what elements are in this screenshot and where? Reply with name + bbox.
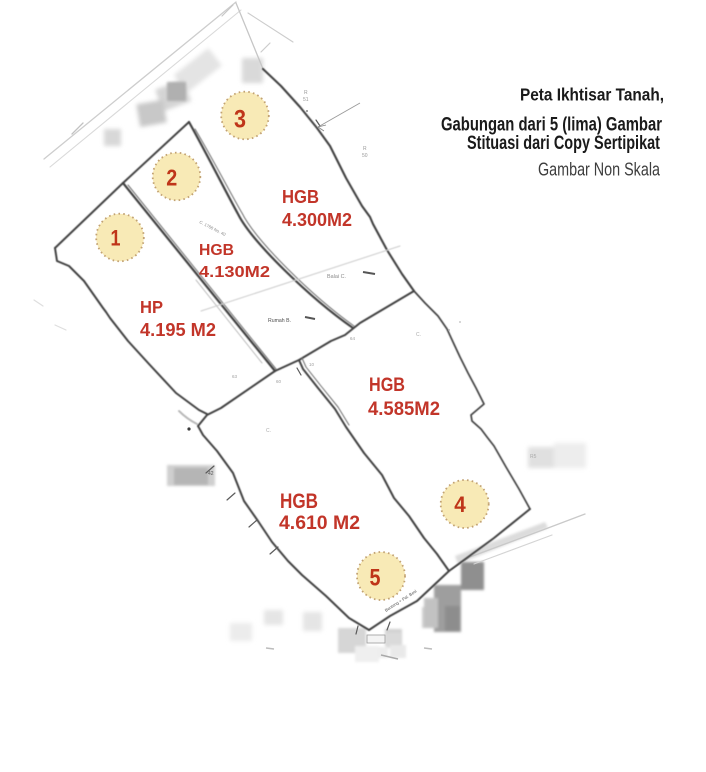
svg-text:51: 51	[303, 97, 309, 103]
svg-text:R: R	[304, 90, 308, 96]
svg-text:C.: C.	[266, 428, 271, 434]
svg-text:4.130M2: 4.130M2	[199, 264, 270, 281]
svg-text:1: 1	[111, 225, 121, 250]
svg-text:4.610 M2: 4.610 M2	[279, 512, 360, 534]
svg-text:64: 64	[350, 336, 356, 341]
svg-text:4.300M2: 4.300M2	[282, 209, 352, 230]
svg-text:HGB: HGB	[369, 374, 405, 396]
svg-text:R5: R5	[530, 454, 537, 460]
svg-text:63: 63	[232, 374, 238, 379]
svg-text:HGB: HGB	[199, 242, 234, 259]
svg-text:Stituasi dari Copy Sertipikat: Stituasi dari Copy Sertipikat	[467, 133, 661, 154]
svg-text:10: 10	[309, 362, 315, 367]
svg-text:R: R	[363, 146, 367, 152]
svg-text:50: 50	[362, 153, 368, 159]
svg-text:Balai C.: Balai C.	[327, 274, 346, 280]
svg-text:C.: C.	[416, 332, 421, 338]
svg-text:3: 3	[234, 105, 246, 133]
svg-text:Rumah B.: Rumah B.	[268, 318, 291, 324]
svg-text:42: 42	[208, 471, 214, 477]
svg-text:Gambar Non Skala: Gambar Non Skala	[538, 159, 660, 180]
svg-text:HGB: HGB	[280, 490, 318, 513]
svg-text:4: 4	[454, 492, 466, 517]
svg-text:2: 2	[166, 165, 177, 191]
svg-text:4.585M2: 4.585M2	[368, 398, 440, 420]
svg-text:HGB: HGB	[282, 186, 319, 207]
svg-text:HP: HP	[140, 297, 163, 317]
svg-text:5: 5	[370, 565, 381, 592]
svg-text:Peta Ikhtisar Tanah,: Peta Ikhtisar Tanah,	[520, 85, 664, 105]
svg-text:4.195 M2: 4.195 M2	[140, 319, 216, 340]
svg-text:60: 60	[276, 379, 282, 384]
